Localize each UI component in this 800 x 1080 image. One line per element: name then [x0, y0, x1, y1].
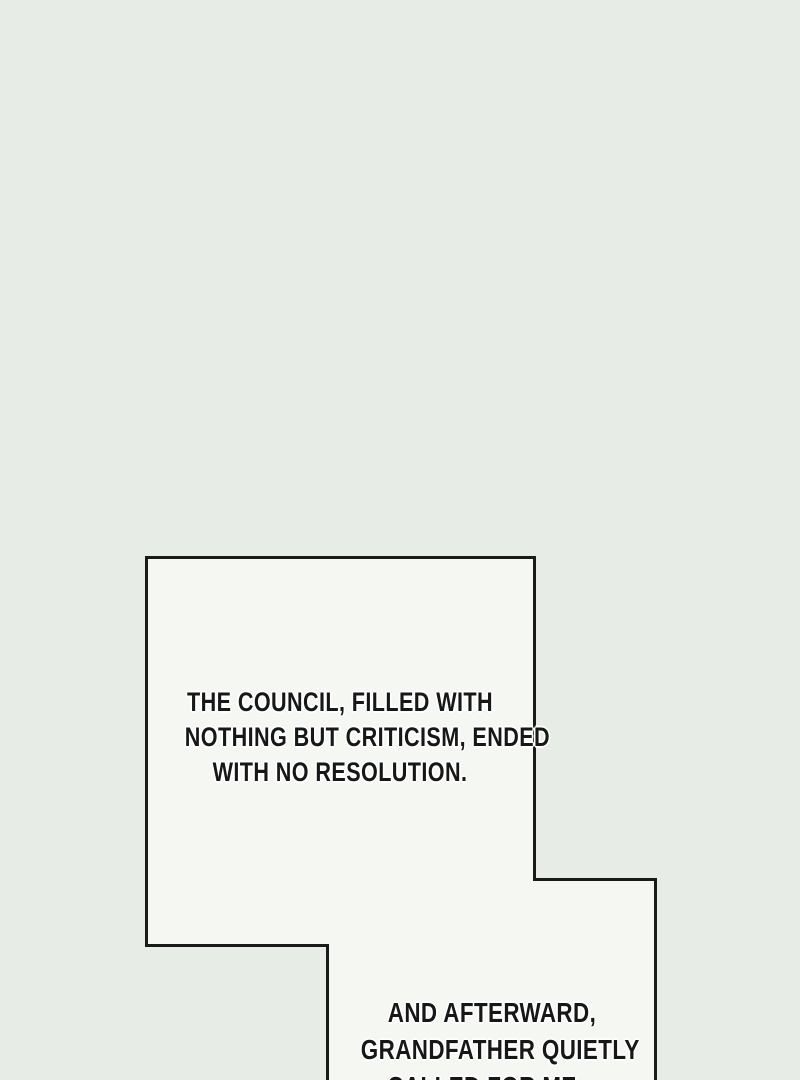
caption-line: AND AFTERWARD,: [361, 994, 623, 1031]
caption-line: NOTHING BUT CRITICISM, ENDED: [185, 720, 495, 755]
narration-text-bottom: AND AFTERWARD, GRANDFATHER QUIETLY CALLE…: [361, 994, 623, 1080]
caption-line: THE COUNCIL, FILLED WITH: [185, 685, 495, 720]
caption-line: CALLED FOR ME...: [361, 1068, 623, 1080]
narration-panel-outline: [0, 0, 800, 1080]
comic-page: THE COUNCIL, FILLED WITH NOTHING BUT CRI…: [0, 0, 800, 1080]
narration-text-top: THE COUNCIL, FILLED WITH NOTHING BUT CRI…: [185, 685, 495, 790]
caption-line: WITH NO RESOLUTION.: [185, 755, 495, 790]
caption-line: GRANDFATHER QUIETLY: [361, 1031, 623, 1068]
